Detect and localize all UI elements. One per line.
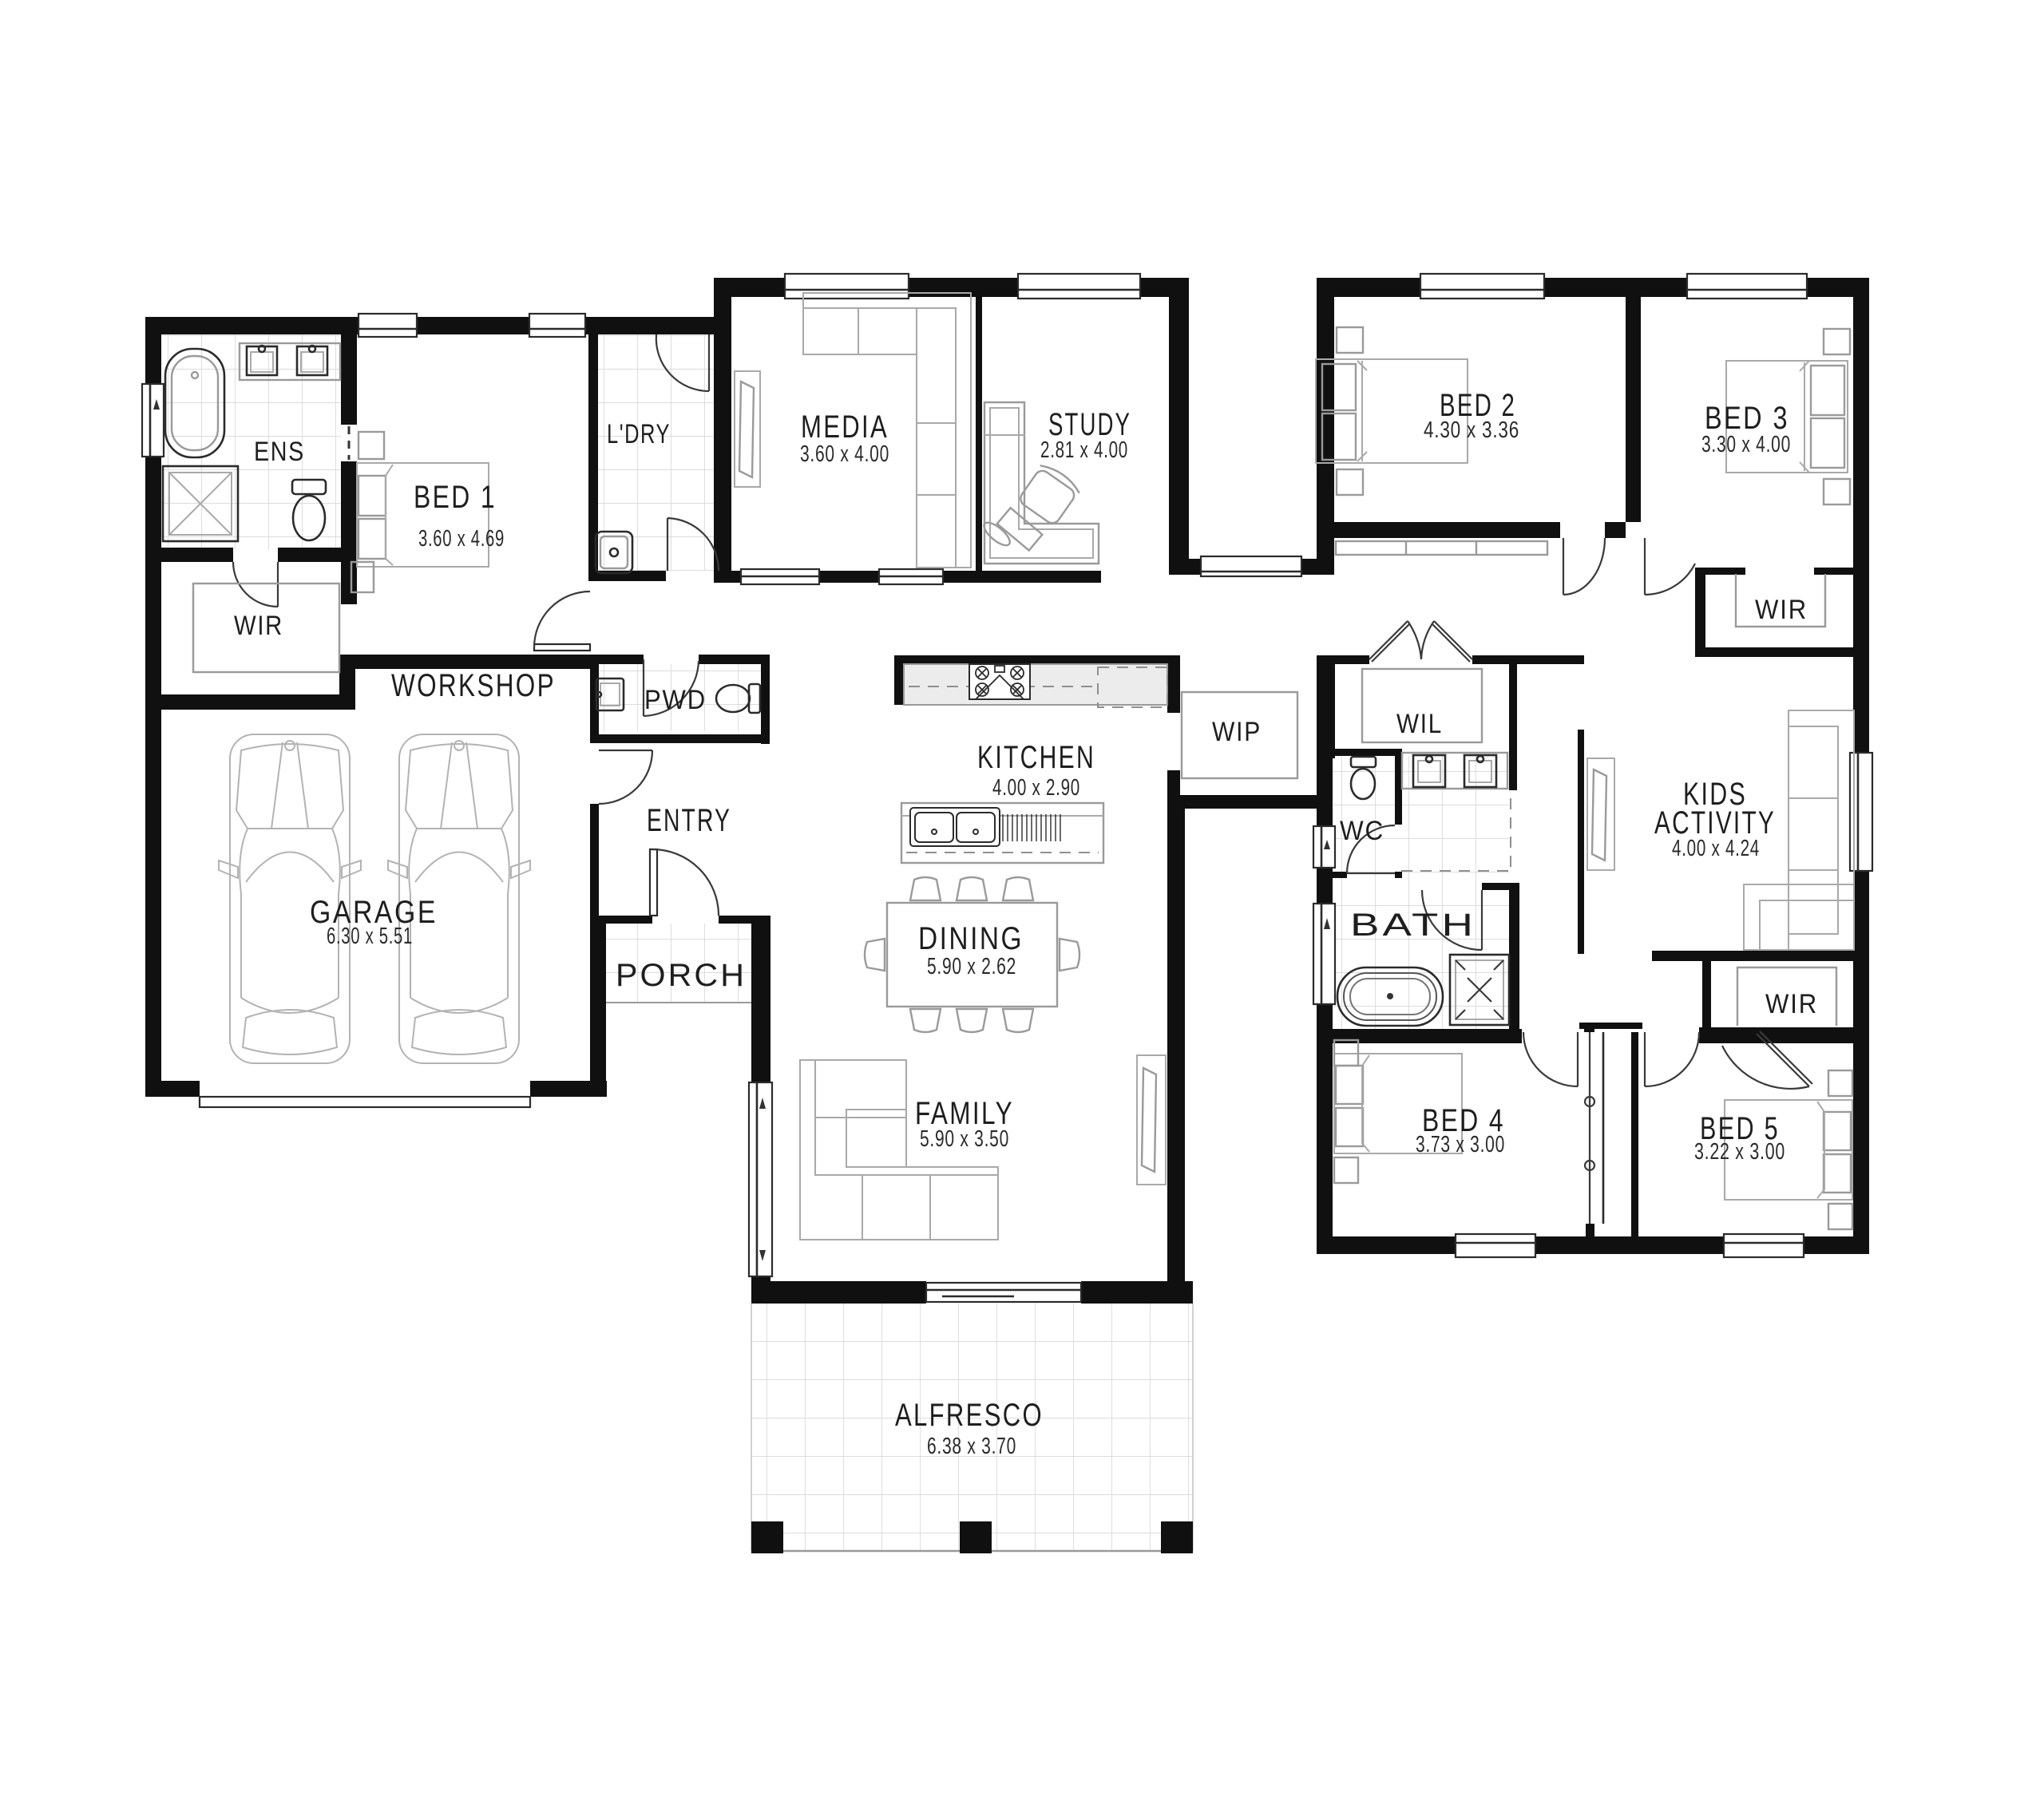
svg-text:WORKSHOP: WORKSHOP [391, 668, 556, 703]
svg-text:4.00 x 4.24: 4.00 x 4.24 [1672, 836, 1760, 861]
svg-text:4.00 x 2.90: 4.00 x 2.90 [992, 775, 1080, 801]
svg-text:3.73 x 3.00: 3.73 x 3.00 [1416, 1132, 1505, 1157]
svg-text:ALFRESCO: ALFRESCO [895, 1398, 1044, 1433]
svg-text:4.30 x 3.36: 4.30 x 3.36 [1424, 417, 1519, 443]
svg-text:5.90 x 3.50: 5.90 x 3.50 [920, 1126, 1009, 1152]
svg-text:BED 3: BED 3 [1705, 401, 1789, 436]
svg-text:ENTRY: ENTRY [647, 803, 731, 838]
svg-text:WC: WC [1340, 816, 1384, 846]
svg-text:BATH: BATH [1350, 908, 1476, 943]
svg-text:3.22 x 3.00: 3.22 x 3.00 [1694, 1139, 1785, 1165]
svg-text:BED 1: BED 1 [414, 480, 497, 515]
svg-text:L'DRY: L'DRY [607, 419, 671, 449]
svg-text:PORCH: PORCH [616, 958, 747, 993]
svg-text:KITCHEN: KITCHEN [977, 740, 1095, 775]
svg-text:2.81 x 4.00: 2.81 x 4.00 [1040, 437, 1128, 463]
svg-text:MEDIA: MEDIA [801, 409, 889, 445]
svg-text:5.90 x 2.62: 5.90 x 2.62 [927, 954, 1016, 979]
svg-text:3.60 x 4.00: 3.60 x 4.00 [800, 441, 889, 467]
svg-text:WIP: WIP [1212, 717, 1262, 747]
svg-text:ENS: ENS [254, 437, 305, 467]
svg-text:WIR: WIR [1755, 595, 1808, 625]
svg-text:WIL: WIL [1396, 709, 1443, 739]
svg-text:PWD: PWD [644, 685, 707, 715]
svg-text:3.60 x 4.69: 3.60 x 4.69 [418, 526, 505, 552]
svg-text:6.30 x 5.51: 6.30 x 5.51 [327, 924, 413, 949]
svg-text:3.30 x 4.00: 3.30 x 4.00 [1701, 432, 1791, 457]
svg-text:6.38 x 3.70: 6.38 x 3.70 [927, 1434, 1016, 1459]
svg-text:DINING: DINING [918, 921, 1024, 956]
svg-text:WIR: WIR [1765, 989, 1818, 1019]
svg-text:WIR: WIR [234, 611, 283, 641]
